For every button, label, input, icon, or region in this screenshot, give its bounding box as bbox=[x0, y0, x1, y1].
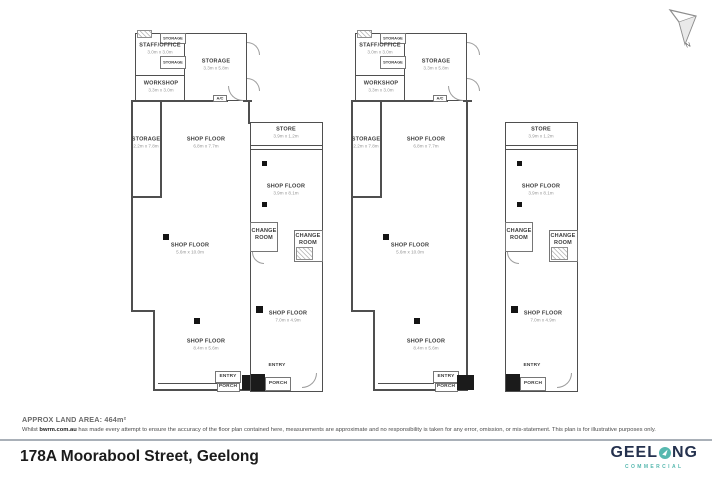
room-label: SHOP FLOOR3.9m x 8.1m bbox=[522, 183, 560, 196]
stairs-hatch bbox=[551, 247, 568, 260]
room-label: WORKSHOP3.3m x 3.0m bbox=[364, 80, 399, 93]
column-marker bbox=[414, 318, 420, 324]
footer-divider bbox=[0, 439, 712, 441]
room-label: SHOP FLOOR7.0m x 4.9m bbox=[269, 310, 307, 323]
logo-o-icon bbox=[659, 447, 671, 459]
floor-plan-page: STORAGE STORAGE STAFF/OFFICE3.0m x 3.0m … bbox=[0, 0, 712, 480]
disclaimer-site: bwrm.com.au bbox=[39, 427, 76, 433]
room-label: CHANGE ROOM bbox=[506, 228, 532, 242]
room-label: STAFF/OFFICE3.0m x 3.0m bbox=[359, 42, 400, 55]
stairs-hatch bbox=[357, 30, 372, 38]
column-marker bbox=[262, 202, 267, 207]
logo-wordmark: GEELNG bbox=[610, 444, 698, 462]
room-label: STORAGE3.3m x 5.8m bbox=[202, 58, 231, 71]
column-marker bbox=[517, 202, 522, 207]
wall bbox=[250, 145, 323, 150]
geelong-commercial-logo: GEELNG COMMERCIAL bbox=[610, 444, 698, 470]
room-label: ENTRY bbox=[219, 374, 236, 380]
room-label: A/C bbox=[437, 95, 444, 100]
shopfront-glazing bbox=[158, 383, 218, 390]
land-area-text: APPROX LAND AREA: 464m² bbox=[22, 415, 126, 424]
stairs-hatch bbox=[137, 30, 152, 38]
room-label: PORCH bbox=[269, 381, 287, 387]
room-label: STORAGE bbox=[163, 59, 183, 64]
column-marker bbox=[511, 306, 518, 313]
room-label: PORCH bbox=[437, 384, 455, 390]
column-marker bbox=[256, 306, 263, 313]
door-swing bbox=[467, 78, 480, 91]
solid-structure bbox=[506, 374, 520, 391]
solid-structure bbox=[251, 374, 265, 391]
room-label: WORKSHOP3.3m x 3.0m bbox=[144, 80, 179, 93]
wall bbox=[373, 310, 375, 391]
shopfront-glazing bbox=[378, 383, 434, 390]
wall bbox=[160, 100, 162, 198]
room-label: PORCH bbox=[524, 381, 542, 387]
room-label: ENTRY bbox=[437, 374, 454, 380]
column-marker bbox=[163, 234, 169, 240]
column-marker bbox=[194, 318, 200, 324]
wall bbox=[131, 196, 162, 198]
room-label: SHOP FLOOR5.6m x 10.0m bbox=[391, 242, 429, 255]
room-label: SHOP FLOOR5.6m x 10.0m bbox=[171, 242, 209, 255]
door-swing bbox=[247, 42, 260, 55]
column-marker bbox=[517, 161, 522, 166]
wall bbox=[380, 100, 382, 198]
room-label: STORAGE2.2m x 7.8m bbox=[132, 136, 161, 149]
wall bbox=[131, 100, 133, 312]
door-swing bbox=[467, 42, 480, 55]
column-marker bbox=[383, 234, 389, 240]
room-label: STORAGE3.3m x 5.8m bbox=[422, 58, 451, 71]
room-label: STORAGE bbox=[163, 35, 183, 40]
wall bbox=[351, 196, 382, 198]
room-label: CHANGE ROOM bbox=[251, 228, 277, 242]
solid-structure bbox=[457, 375, 474, 390]
address-title: 178A Moorabool Street, Geelong bbox=[20, 448, 259, 466]
room-label: ENTRY bbox=[523, 363, 540, 369]
room-label: STORE3.9m x 1.2m bbox=[528, 126, 553, 139]
room-label: STORAGE bbox=[383, 59, 403, 64]
room-label: SHOP FLOOR6.8m x 7.7m bbox=[407, 136, 445, 149]
wall bbox=[153, 310, 155, 391]
room-label: SHOP FLOOR7.0m x 4.9m bbox=[524, 310, 562, 323]
room-label: SHOP FLOOR6.8m x 7.7m bbox=[187, 136, 225, 149]
logo-subtitle: COMMERCIAL bbox=[610, 464, 698, 470]
room-label: STORAGE2.2m x 7.8m bbox=[352, 136, 381, 149]
room-label: A/C bbox=[217, 95, 224, 100]
wall bbox=[351, 310, 375, 312]
stairs-hatch bbox=[296, 247, 313, 260]
north-arrow-icon: N bbox=[664, 8, 708, 52]
room-label: SHOP FLOOR8.4m x 5.6m bbox=[187, 338, 225, 351]
room-label: STORE3.9m x 1.2m bbox=[273, 126, 298, 139]
room-label: PORCH bbox=[219, 384, 237, 390]
room-label: CHANGE ROOM bbox=[295, 233, 321, 247]
wall bbox=[248, 100, 250, 124]
wall bbox=[505, 145, 578, 150]
room-label: SHOP FLOOR3.9m x 8.1m bbox=[267, 183, 305, 196]
column-marker bbox=[262, 161, 267, 166]
door-swing bbox=[247, 78, 260, 91]
wall bbox=[131, 310, 155, 312]
room-label: STORAGE bbox=[383, 35, 403, 40]
disclaimer-text: Whilst bwrm.com.au has made every attemp… bbox=[22, 427, 656, 433]
room-label: CHANGE ROOM bbox=[550, 233, 576, 247]
wall bbox=[466, 100, 468, 391]
room-label: SHOP FLOOR8.4m x 5.6m bbox=[407, 338, 445, 351]
wall bbox=[351, 100, 353, 312]
room-label: ENTRY bbox=[268, 363, 285, 369]
room-label: STAFF/OFFICE3.0m x 3.0m bbox=[139, 42, 180, 55]
